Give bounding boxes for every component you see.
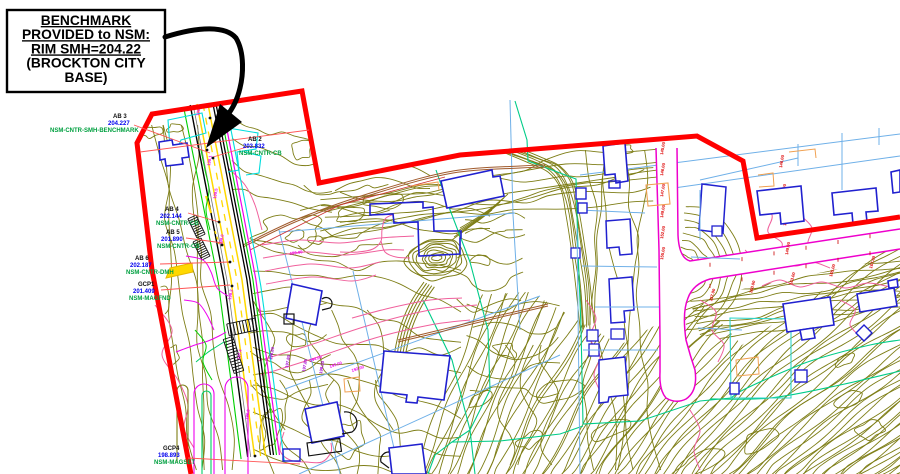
svg-text:GCP1: GCP1 [138,282,155,288]
svg-text:GCP4: GCP4 [163,446,180,452]
svg-text:NSM-CNTR-CB: NSM-CNTR-CB [239,151,282,157]
svg-text:PROVIDED to NSM:: PROVIDED to NSM: [22,27,150,42]
svg-text:NSM-MAGSET: NSM-MAGSET [154,460,195,466]
svg-text:BASE): BASE) [65,70,108,85]
svg-text:NSM-MAGFND: NSM-MAGFND [129,296,171,302]
svg-text:NSM-CNTR-CB: NSM-CNTR-CB [156,221,199,227]
svg-text:203.832: 203.832 [243,144,265,150]
svg-text:202.187: 202.187 [130,263,152,269]
svg-text:AB 5: AB 5 [166,230,180,236]
svg-text:NSM-CNTR-SMH-BENCHMARK: NSM-CNTR-SMH-BENCHMARK [50,128,139,134]
svg-text:NSM-CNTR-CB: NSM-CNTR-CB [157,244,200,250]
svg-text:201.890: 201.890 [161,237,183,243]
svg-text:AB 3: AB 3 [113,114,127,120]
svg-text:198.893: 198.893 [158,453,180,459]
svg-text:AB 4: AB 4 [165,207,179,213]
svg-text:201.409: 201.409 [133,289,155,295]
svg-text:AB 6: AB 6 [135,256,149,262]
svg-text:202.144: 202.144 [160,214,182,220]
svg-text:AB 2: AB 2 [248,137,262,143]
svg-text:(BROCKTON CITY: (BROCKTON CITY [26,56,145,71]
svg-text:NSM-CNTR-DMH: NSM-CNTR-DMH [126,270,174,276]
svg-text:204.227: 204.227 [108,121,130,127]
svg-text:BENCHMARK: BENCHMARK [41,13,131,28]
svg-text:RIM SMH=204.22: RIM SMH=204.22 [31,41,141,56]
